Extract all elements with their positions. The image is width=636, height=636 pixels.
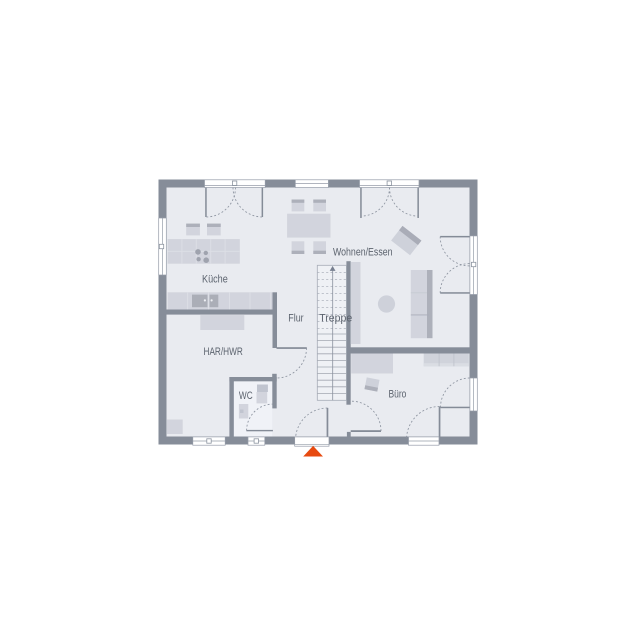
svg-text:Büro: Büro: [389, 389, 407, 401]
svg-text:WC: WC: [239, 390, 253, 402]
svg-text:Treppe: Treppe: [319, 313, 352, 325]
svg-text:Küche: Küche: [202, 274, 228, 286]
svg-text:HAR/HWR: HAR/HWR: [204, 346, 243, 358]
svg-text:Flur: Flur: [288, 313, 304, 325]
svg-text:Wohnen/Essen: Wohnen/Essen: [333, 246, 393, 258]
